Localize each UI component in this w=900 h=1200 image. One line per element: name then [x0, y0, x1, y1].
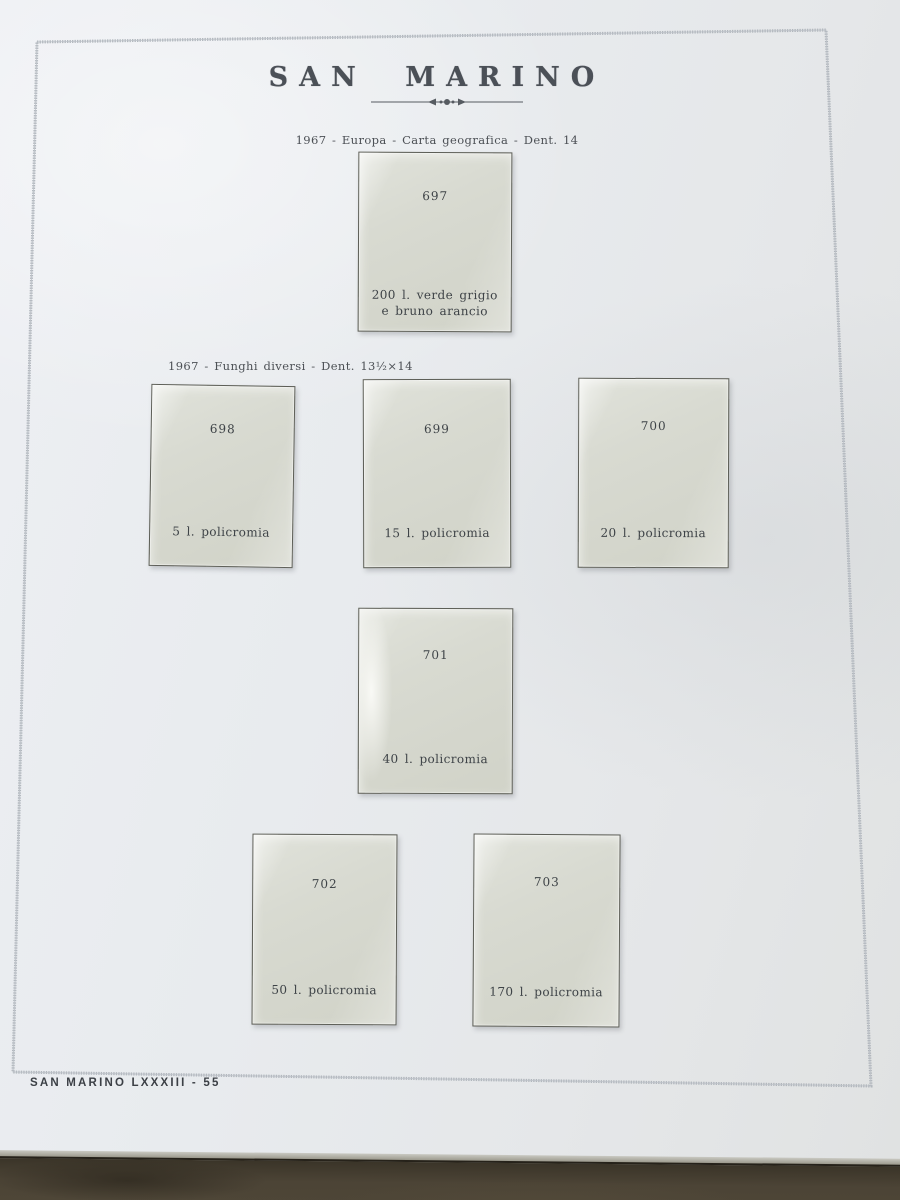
album-page-photo: SAN MARINO 1967 - Europa - Carta geograf… — [0, 0, 900, 1200]
section-caption-funghi: 1967 - Funghi diversi - Dent. 13½×14 — [168, 359, 413, 373]
mount-number: 700 — [579, 419, 728, 434]
divider-ornament-icon — [428, 99, 466, 106]
mount-number: 702 — [253, 877, 396, 892]
mount-label: 20 l. policromia — [579, 525, 728, 542]
mount-number: 698 — [152, 421, 294, 437]
title-divider — [371, 95, 523, 109]
mount-number: 701 — [359, 648, 512, 663]
page-title: SAN MARINO — [262, 62, 612, 93]
mount-label: 50 l. policromia — [253, 981, 396, 998]
desk-surface — [0, 1156, 900, 1200]
section-caption-europa: 1967 - Europa - Carta geografica - Dent.… — [262, 133, 612, 147]
mount-label: 15 l. policromia — [364, 525, 510, 542]
stamp-mount-700: 700 20 l. policromia — [578, 378, 730, 569]
stamp-mount-702: 702 50 l. policromia — [252, 834, 398, 1026]
page-footer: SAN MARINO LXXXIII - 55 — [30, 1077, 221, 1089]
stamp-mount-697: 697 200 l. verde grigio e bruno arancio — [358, 152, 513, 333]
mount-number: 697 — [359, 189, 511, 204]
stamp-mount-699: 699 15 l. policromia — [363, 379, 511, 568]
mount-number: 699 — [364, 422, 510, 436]
mount-label: 200 l. verde grigio e bruno arancio — [359, 286, 511, 319]
stamp-mount-703: 703 170 l. policromia — [472, 834, 620, 1028]
mount-label: 170 l. policromia — [474, 983, 619, 1000]
mount-label: 5 l. policromia — [150, 523, 292, 541]
stamp-mount-701: 701 40 l. policromia — [358, 608, 514, 795]
stamp-mount-698: 698 5 l. policromia — [149, 384, 296, 568]
mount-number: 703 — [474, 875, 619, 890]
mount-label: 40 l. policromia — [359, 751, 512, 768]
